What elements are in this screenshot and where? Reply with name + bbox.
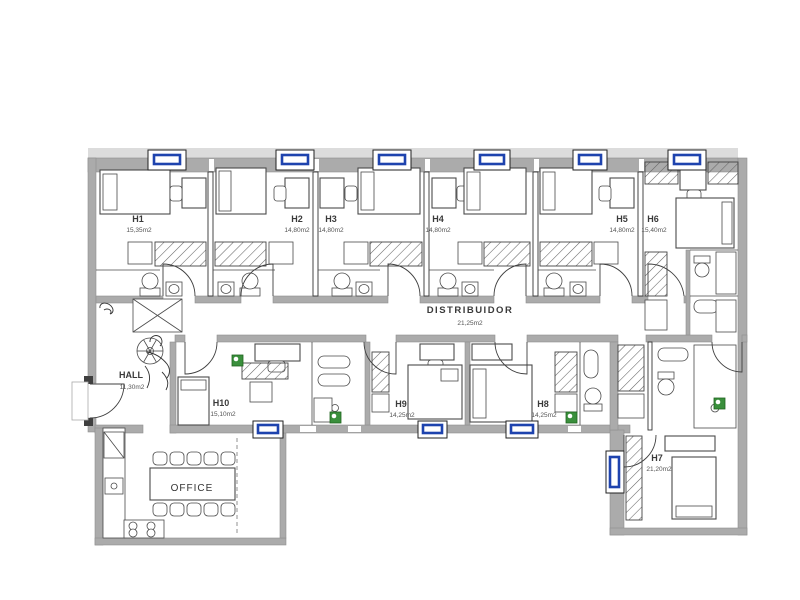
bathroom-h10 [314,356,350,423]
h6-bed [676,198,734,248]
floor-plan: DISTRIBUIDOR 21,25m2 [0,0,800,600]
h4-wardrobe [484,242,530,266]
h4-area: 14,80m2 [425,227,451,234]
window-h5 [573,150,607,170]
h5-closet [594,242,618,264]
h1-bed [100,170,170,214]
h4-sink [462,282,478,296]
h10-bed [178,377,209,425]
h1-toilet [140,273,160,296]
entry-landing [72,382,88,420]
h1-area: 15,35m2 [126,227,152,234]
corridor-distribuidor: DISTRIBUIDOR 21,25m2 [427,305,514,327]
window-h4 [474,150,510,170]
h5-sink [570,282,586,296]
hall-label: HALL [119,370,143,380]
window-h9 [418,421,447,438]
h3-desk [320,178,357,208]
inner-corridor [618,345,644,418]
h6-area: 15,40m2 [641,227,667,234]
floor-plan-drawing: DISTRIBUIDOR 21,25m2 [0,0,800,600]
window-h7 [606,451,624,493]
h9-closet [372,394,389,412]
kitchen-sink [105,478,123,494]
h6-label: H6 [647,214,659,224]
h6-bathroom [694,252,736,332]
h2-label: H2 [291,214,303,224]
h3-bed [358,168,420,214]
distribuidor-area: 21,25m2 [457,320,483,327]
h6-closet [645,300,667,330]
h9-bed [408,365,462,419]
office-label: OFFICE [171,483,214,494]
h10-wardrobe [242,363,288,379]
h1-label: H1 [132,214,144,224]
room-h10 [178,342,300,425]
h8-radiator-dot [568,414,573,419]
h8-area: 14,25m2 [531,412,557,419]
h3-door [388,264,420,296]
h10-label: H10 [213,398,230,408]
h7-bath-radiator-dot [716,400,721,405]
h4-toilet [438,273,458,296]
kitchen-stove [124,520,164,538]
h5-toilet [544,273,564,296]
h3-area: 14,80m2 [318,227,344,234]
h7-bath-toilet [658,379,674,395]
h5-desk [599,178,634,208]
h8-label: H8 [537,399,549,409]
window-h10 [253,421,283,438]
h6-wardrobe-2 [708,162,738,184]
h2-wardrobe [215,242,266,266]
h1-desk [170,178,206,208]
h3-closet [344,242,368,264]
h4-bed [464,168,526,214]
h8-bathroom [584,350,602,411]
h4-closet [458,242,482,264]
h7-wardrobe [626,436,642,520]
bath-shower [314,398,332,422]
h2-area: 14,80m2 [284,227,310,234]
h3-label: H3 [325,214,337,224]
h7-label: H7 [651,453,663,463]
h9-area: 14,25m2 [389,412,415,419]
h5-wardrobe [540,242,592,266]
h8-wardrobe [555,352,577,392]
h3-wardrobe [370,242,422,266]
window-h8 [506,421,538,438]
room-h9 [364,342,462,419]
h4-label: H4 [432,214,444,224]
room-h8 [470,342,602,423]
corridor-wardrobe [618,345,644,391]
h4-door [494,264,526,296]
distribuidor-label: DISTRIBUIDOR [427,305,514,316]
h5-label: H5 [616,214,628,224]
h8-desk [472,344,512,360]
h5-bed [540,168,592,214]
h10-door [185,342,217,374]
h1-sink [166,282,182,296]
h7-desk [665,436,715,451]
h7-bed [672,457,716,519]
bath-tap-2 [332,405,339,412]
stair-shaft [133,299,182,332]
window-h2 [276,150,314,170]
room-h7 [624,435,716,520]
h9-wardrobe [372,352,389,392]
window-h1 [148,150,186,170]
window-h3 [373,150,411,170]
h7-bath-shower [694,345,736,428]
h2-closet [269,242,293,264]
bath-sink-1 [318,356,350,368]
window-h6 [668,150,706,170]
h9-label: H9 [395,399,407,409]
corridor-closet [618,394,644,418]
h3-toilet [332,273,352,296]
kitchen-fridge [104,432,124,458]
bath-radiator-dot [332,414,337,419]
h2-desk [274,178,309,208]
h7-area: 21,20m2 [646,466,672,473]
bathroom-h7 [658,342,742,428]
h1-wardrobe [155,242,206,266]
bath-sink-2 [318,374,350,386]
h5-area: 14,80m2 [609,227,635,234]
h1-closet [128,242,152,264]
h2-sink [218,282,234,296]
h10-radiator-dot [234,357,239,362]
h2-bed [216,168,266,214]
h7-bath-cistern [658,372,674,379]
h8-closet [555,394,577,412]
h3-sink [356,282,372,296]
hall-area: 11,30m2 [120,384,145,391]
h5-door [600,264,632,296]
h10-closet [250,382,272,402]
room-h6 [645,162,738,332]
h7-bath-sink [658,348,688,361]
h10-area: 15,10m2 [210,411,236,418]
